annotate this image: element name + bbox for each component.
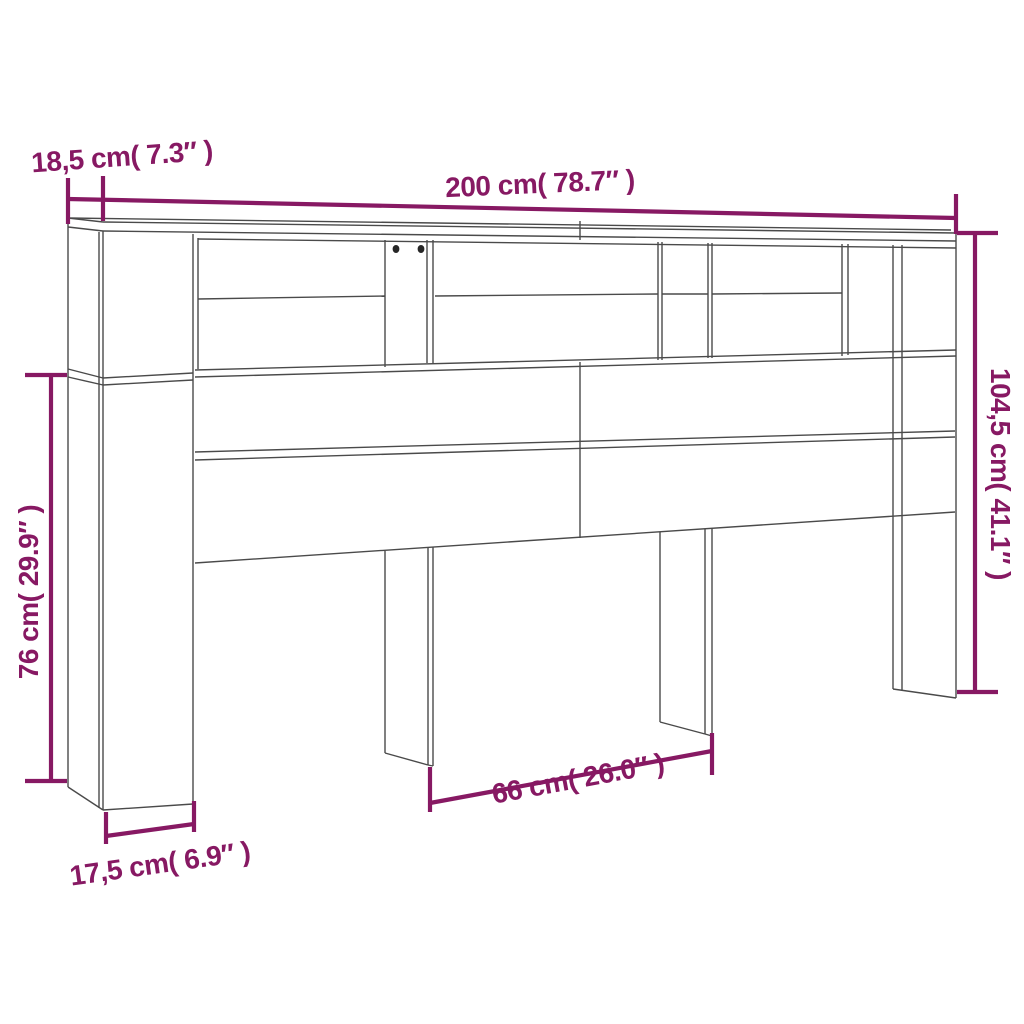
headboard-panel [195,362,955,563]
screw-hole [418,245,425,253]
cabinet-drawing [68,218,956,810]
left-side-panel [68,227,198,810]
dimension-annotations [25,176,998,844]
dimension-label-clearance-height: 76 cm( 29.9″ ) [15,505,43,680]
shelf-dividers [385,240,848,367]
dimension-label-total-height: 104,5 cm( 41.1″ ) [986,368,1014,580]
product-dimension-diagram: 18,5 cm( 7.3″ ) 200 cm( 78.7″ ) 104,5 cm… [0,0,1024,1024]
top-panel [68,218,956,241]
shelf-row [68,239,956,385]
right-side-panel [893,233,956,698]
screw-hole [393,245,400,253]
support-legs [385,528,712,766]
